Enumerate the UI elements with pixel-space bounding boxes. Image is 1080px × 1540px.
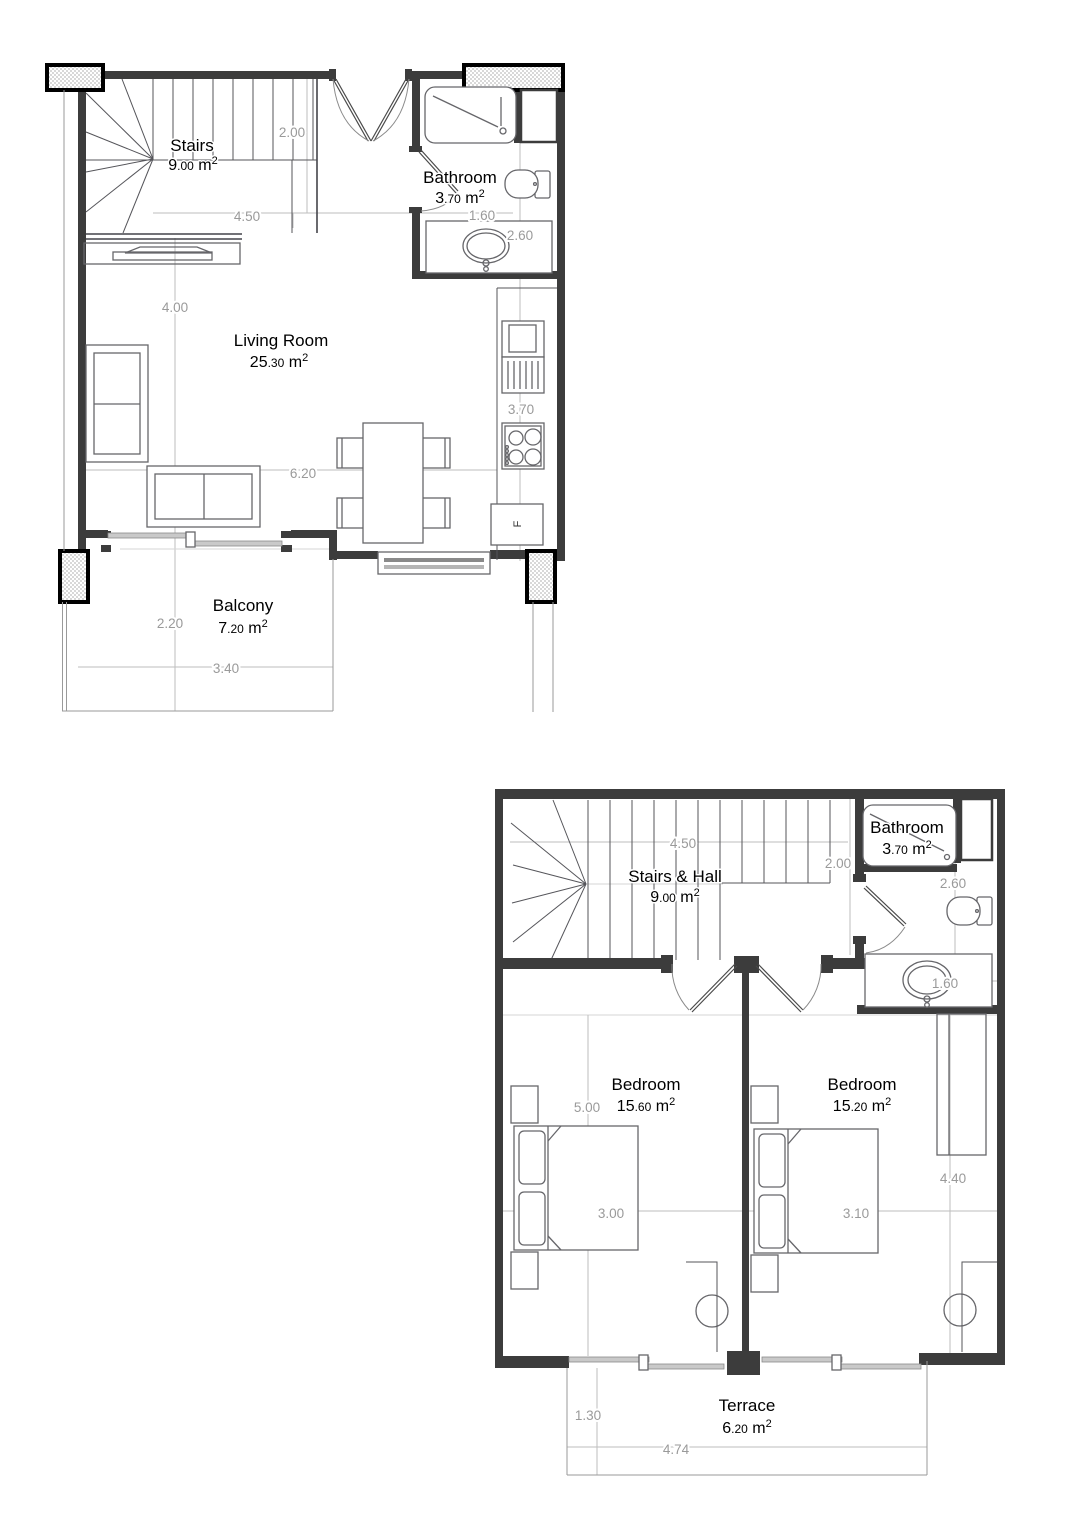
dim-bath-width-f2: 1.60: [932, 976, 958, 991]
dim-stairs-width-f1: 4.50: [234, 209, 260, 224]
room-label-bathroom1: Bathroom: [423, 168, 497, 187]
dim-kitchen-depth: 3.70: [508, 402, 534, 417]
toilet: [505, 170, 550, 198]
kitchen: F: [491, 288, 557, 560]
floor1-labels: Stairs 9.00 m2 Bathroom 3.70 m2 Living R…: [157, 125, 534, 676]
floor2-walls: [495, 789, 1005, 1375]
wardrobe: [937, 1014, 986, 1155]
dining-set: [337, 423, 450, 543]
sink-vanity-2: [865, 954, 992, 1007]
dim-balcony-width: 3.40: [213, 661, 239, 676]
floor1-plan: F: [47, 65, 565, 712]
dim-bath-depth-f2: 2.60: [940, 876, 966, 891]
toilet-2: [947, 897, 992, 925]
floor2-plan: Stairs & Hall 9.00 m2 Bathroom 3.70 m2 B…: [495, 789, 1005, 1475]
dim-living-width: 6.20: [290, 466, 316, 481]
floor2-bathroom-door: [864, 886, 906, 953]
living-room-furniture: [84, 243, 450, 543]
sofa-vertical: [86, 345, 148, 462]
tv-console: [84, 243, 240, 264]
terrace-outline: [567, 1361, 927, 1475]
fridge-label: F: [512, 520, 524, 527]
entrance-door: [333, 79, 409, 141]
dim-bath-width-f1: 1.60: [469, 208, 495, 223]
dim-bath-depth-f1: 2.60: [507, 228, 533, 243]
room-area-bedroom2: 15.20 m2: [833, 1096, 891, 1115]
room-area-bedroom1: 15.60 m2: [617, 1096, 675, 1115]
room-area-balcony: 7.20 m2: [218, 618, 268, 637]
sofa-horizontal: [147, 466, 260, 527]
room-area-living-room: 25.30 m2: [250, 352, 308, 371]
duct-shaft: [521, 90, 557, 142]
dim-terrace-width: 4.74: [663, 1442, 690, 1457]
floorplan-drawing: F: [0, 0, 1080, 1540]
dim-bedroom2-width: 3.10: [843, 1206, 869, 1221]
room-label-terrace: Terrace: [719, 1396, 776, 1415]
room-label-bedroom2: Bedroom: [828, 1075, 897, 1094]
room-area-stairs-hall: 9.00 m2: [650, 887, 700, 906]
room-area-bathroom1: 3.70 m2: [435, 188, 485, 207]
dim-balcony-depth: 2.20: [157, 616, 183, 631]
room-area-terrace: 6.20 m2: [722, 1418, 772, 1437]
dim-bedroom2-height: 4.40: [940, 1171, 966, 1186]
dim-bedroom1-height: 5.00: [574, 1100, 600, 1115]
room-area-bathroom2: 3.70 m2: [882, 839, 932, 858]
floorplan-page: F: [0, 0, 1080, 1540]
balcony-sliding-door: [108, 532, 282, 547]
dim-bedroom1-width: 3.00: [598, 1206, 624, 1221]
room-label-bathroom2: Bathroom: [870, 818, 944, 837]
living-room-window: [378, 552, 490, 574]
kitchen-sink: [502, 321, 544, 393]
dim-stairs-width-f2: 4.50: [670, 836, 696, 851]
dim-terrace-depth: 1.30: [575, 1408, 601, 1423]
duct-shaft-2: [961, 799, 992, 860]
shower: [425, 87, 516, 143]
room-label-bedroom1: Bedroom: [612, 1075, 681, 1094]
room-label-living-room: Living Room: [234, 331, 329, 350]
dim-hall-width-f2: 2.00: [825, 856, 851, 871]
stove: [502, 423, 544, 469]
dim-living-height: 4.00: [162, 300, 188, 315]
dim-hall-width-f1: 2.00: [279, 125, 305, 140]
fridge: F: [491, 504, 543, 545]
room-area-stairs: 9.00 m2: [168, 155, 218, 174]
room-label-stairs-hall: Stairs & Hall: [628, 867, 722, 886]
room-label-balcony: Balcony: [213, 596, 274, 615]
room-label-stairs: Stairs: [170, 136, 213, 155]
